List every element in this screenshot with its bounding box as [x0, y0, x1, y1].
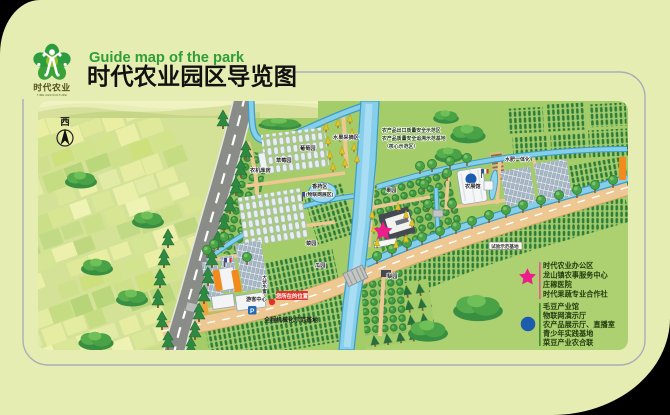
- svg-text:龙山镇农事服务中心: 龙山镇农事服务中心: [542, 271, 609, 280]
- svg-text:草莓园: 草莓园: [276, 156, 292, 164]
- svg-text:TIME AGRICULTURE: TIME AGRICULTURE: [37, 93, 67, 97]
- svg-text:菜豆产业农合联: 菜豆产业农合联: [542, 338, 594, 347]
- svg-text:西: 西: [60, 117, 70, 128]
- svg-text:时代农业办公区: 时代农业办公区: [543, 261, 593, 270]
- svg-text:农产品展示厅、直播室: 农产品展示厅、直播室: [542, 320, 615, 329]
- svg-text:毛豆产业馆: 毛豆产业馆: [543, 302, 579, 311]
- svg-text:水果采摘区: 水果采摘区: [333, 133, 360, 141]
- svg-text:香药区: 香药区: [312, 182, 328, 190]
- svg-text:P: P: [250, 308, 255, 315]
- svg-text:青少年实践基地: 青少年实践基地: [543, 329, 594, 338]
- svg-text:农产品质量安全追溯示范基地: 农产品质量安全追溯示范基地: [381, 135, 446, 142]
- svg-text:（核心示范区）: （核心示范区）: [384, 143, 418, 150]
- svg-text:时代果蔬专业合作社: 时代果蔬专业合作社: [543, 290, 609, 299]
- svg-text:农机库房: 农机库房: [249, 166, 271, 174]
- svg-text:农展馆: 农展馆: [464, 182, 481, 190]
- svg-text:您所在的位置: 您所在的位置: [276, 292, 309, 300]
- svg-text:(物联网展区): (物联网展区): [306, 191, 334, 198]
- svg-text:大伏水蜜: 大伏水蜜: [262, 274, 268, 295]
- svg-text:农产品出口质量安全示范区: 农产品出口质量安全示范区: [381, 127, 441, 134]
- svg-text:庄稼医院: 庄稼医院: [543, 280, 573, 289]
- svg-text:水肥一体化: 水肥一体化: [504, 156, 530, 163]
- svg-text:游客中心: 游客中心: [246, 295, 268, 303]
- svg-text:试验示范基地: 试验示范基地: [491, 243, 519, 250]
- svg-text:菜园: 菜园: [305, 239, 316, 247]
- svg-text:物联网演示厅: 物联网演示厅: [543, 311, 586, 320]
- svg-text:瓜园: 瓜园: [315, 261, 325, 269]
- svg-text:梨园: 梨园: [387, 272, 397, 280]
- svg-text:时代农业园区导览图: 时代农业园区导览图: [87, 64, 297, 90]
- svg-text:时代农业: 时代农业: [33, 82, 71, 93]
- svg-text:果园: 果园: [385, 186, 396, 194]
- svg-text:全程机械化示范基地: 全程机械化示范基地: [263, 316, 318, 324]
- svg-text:葡萄园: 葡萄园: [299, 144, 316, 152]
